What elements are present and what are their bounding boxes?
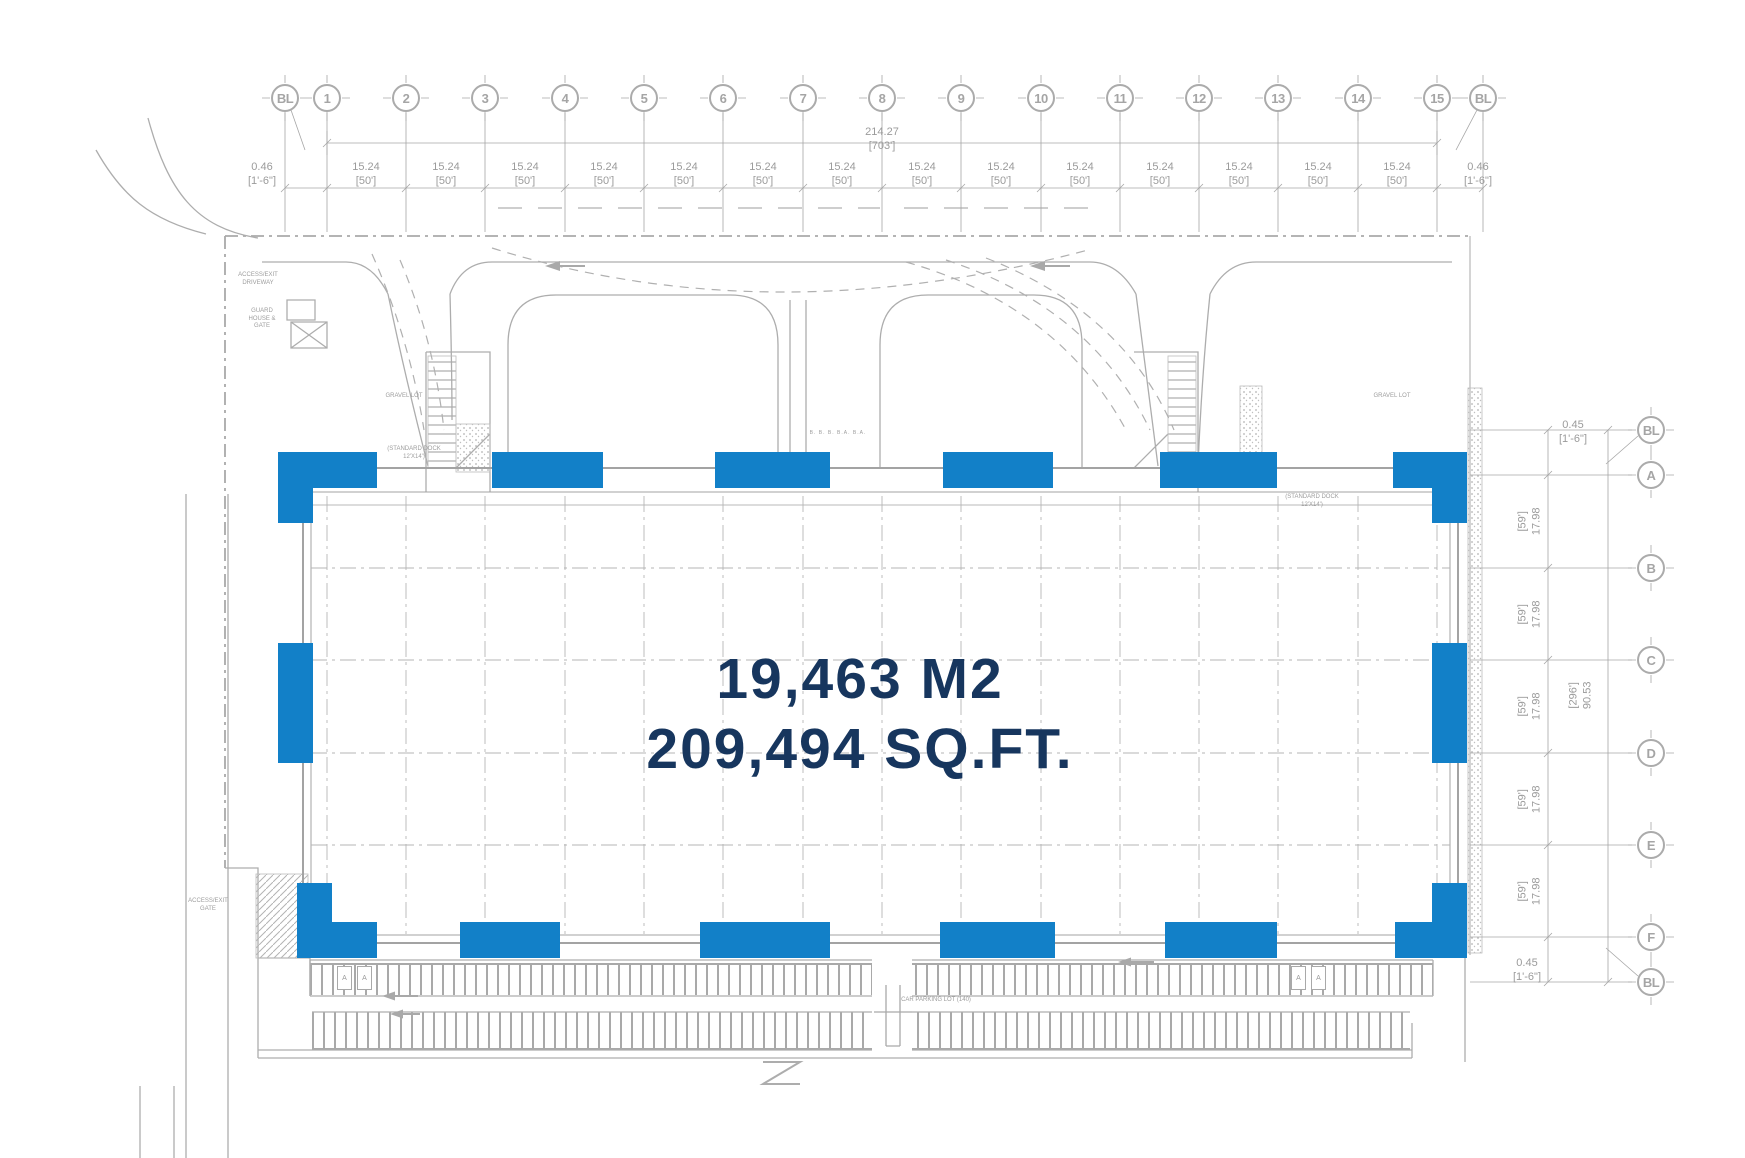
dimension-metric: 17.98	[1531, 693, 1543, 721]
dimension-imperial: [50']	[436, 175, 456, 187]
dimension-right: [59']17.98	[1516, 671, 1545, 741]
grid-bubble-top: 13	[1264, 84, 1292, 112]
grid-bubble-top: 9	[947, 84, 975, 112]
grid-bubble-top: 5	[630, 84, 658, 112]
dimension-overall-right: [296']90.53	[1567, 660, 1596, 730]
dock-door-letter: A	[362, 975, 367, 982]
dimension-top: 0.46[1'-6"]	[1443, 160, 1513, 189]
grid-bubble-top: 14	[1344, 84, 1372, 112]
dimension-metric: 17.98	[1531, 786, 1543, 814]
dimension-right: [59']17.98	[1516, 764, 1545, 834]
grid-bubble-label: 11	[1114, 91, 1127, 106]
grid-bubble-right: F	[1637, 923, 1665, 951]
grid-bubble-top: 4	[551, 84, 579, 112]
grid-bubble-label: 13	[1271, 91, 1284, 106]
center-ramp	[872, 956, 912, 1056]
dock-door-marker: A	[337, 966, 352, 990]
grid-bubble-right: C	[1637, 646, 1665, 674]
dimension-top: 15.24[50']	[887, 160, 957, 189]
grid-bubble-top: 12	[1185, 84, 1213, 112]
dimension-metric: 17.98	[1531, 878, 1543, 906]
dimension-top: 15.24[50']	[1204, 160, 1274, 189]
grid-bubble-label: B	[1647, 561, 1656, 576]
dock-door-marker: A	[357, 966, 372, 990]
grid-bubble-label: 14	[1351, 91, 1364, 106]
dimension-top: 15.24[50']	[807, 160, 877, 189]
grid-bubble-label: BL	[1643, 423, 1659, 438]
dimension-right: [59']17.98	[1516, 579, 1545, 649]
dimension-top: 15.24[50']	[649, 160, 719, 189]
dimension-top: 15.24[50']	[411, 160, 481, 189]
dimension-metric: 15.24	[828, 161, 856, 173]
dimension-imperial: [703']	[869, 140, 896, 152]
grid-bubble-label: A	[1647, 468, 1656, 483]
grid-bubble-label: 9	[958, 91, 965, 106]
dimension-metric: 15.24	[511, 161, 539, 173]
dimension-imperial: [50']	[1308, 175, 1328, 187]
grid-bubble-label: E	[1647, 838, 1655, 853]
grid-bubble-label: 3	[482, 91, 489, 106]
dimension-metric: 90.53	[1582, 682, 1594, 710]
micro-label-guard-house: GUARD HOUSE & GATE	[248, 308, 275, 331]
dimension-metric: 214.27	[865, 126, 899, 138]
grid-bubble-right: B	[1637, 554, 1665, 582]
dimension-metric: 15.24	[590, 161, 618, 173]
dimension-top: 15.24[50']	[331, 160, 401, 189]
dimension-imperial: [50']	[832, 175, 852, 187]
grid-bubble-label: C	[1647, 653, 1656, 668]
dimension-metric: 15.24	[749, 161, 777, 173]
dock-door-letter: A	[342, 975, 347, 982]
dimension-imperial: [1'-6"]	[1513, 971, 1541, 983]
dimension-metric: 15.24	[670, 161, 698, 173]
dimension-metric: 15.24	[987, 161, 1015, 173]
dimension-metric: 15.24	[1066, 161, 1094, 173]
dock-door-letter: A	[1316, 975, 1321, 982]
grid-bubble-label: 10	[1034, 91, 1047, 106]
dimension-metric: 0.45	[1516, 957, 1537, 969]
dimension-imperial: [1'-6"]	[1464, 175, 1492, 187]
dimension-top: 15.24[50']	[966, 160, 1036, 189]
grid-bubble-label: F	[1647, 930, 1654, 945]
grid-bubble-label: BL	[277, 91, 293, 106]
grid-bubble-label: BL	[1475, 91, 1491, 106]
micro-label-gravel-right: GRAVEL LOT	[1373, 393, 1410, 401]
dimension-imperial: [59']	[1517, 604, 1529, 624]
dimension-imperial: [59']	[1517, 789, 1529, 809]
grid-bubble-top: 8	[868, 84, 896, 112]
grid-bubble-right: A	[1637, 461, 1665, 489]
area-label-m2: 19,463 M2	[440, 646, 1280, 712]
dimension-metric: 15.24	[908, 161, 936, 173]
grid-bubble-top: 7	[789, 84, 817, 112]
dimension-imperial: [50']	[1387, 175, 1407, 187]
dimension-imperial: [50']	[515, 175, 535, 187]
dimension-overall-top: 214.27[703']	[842, 125, 922, 154]
grid-bubble-top: 1	[313, 84, 341, 112]
roads-and-yard	[96, 118, 1465, 1158]
dimension-top: 0.46[1'-6"]	[227, 160, 297, 189]
dimension-imperial: [296']	[1568, 682, 1580, 709]
dimension-metric: 15.24	[1383, 161, 1411, 173]
dimension-imperial: [59']	[1517, 881, 1529, 901]
dimension-right-top: 0.45[1'-6"]	[1538, 418, 1608, 447]
grid-bubble-label: 15	[1430, 91, 1443, 106]
dimension-top: 15.24[50']	[569, 160, 639, 189]
micro-label-door-tags: B. B. B. B.A. B.A.	[810, 430, 867, 436]
dimension-top: 15.24[50']	[490, 160, 560, 189]
grid-bubble-top: 15	[1423, 84, 1451, 112]
grid-bubble-label: 12	[1192, 91, 1205, 106]
dimension-metric: 0.46	[251, 161, 272, 173]
grid-bubble-label: 1	[324, 91, 331, 106]
dimension-top: 15.24[50']	[1362, 160, 1432, 189]
dimension-imperial: [59']	[1517, 696, 1529, 716]
dimension-top: 15.24[50']	[1045, 160, 1115, 189]
dimension-imperial: [50']	[1229, 175, 1249, 187]
dimension-metric: 15.24	[432, 161, 460, 173]
grid-bubble-label: 6	[720, 91, 727, 106]
grid-bubble-right: BL	[1637, 968, 1665, 996]
grid-bubble-top: 3	[471, 84, 499, 112]
dimension-metric: 17.98	[1531, 508, 1543, 536]
dimension-imperial: [50']	[1150, 175, 1170, 187]
micro-label-dock-right: (STANDARD DOCK 12'X14')	[1285, 494, 1339, 509]
dimension-imperial: [59']	[1517, 511, 1529, 531]
dimension-imperial: [50']	[912, 175, 932, 187]
grid-bubble-label: 7	[800, 91, 807, 106]
dimension-imperial: [50']	[753, 175, 773, 187]
dimension-metric: 17.98	[1531, 601, 1543, 629]
dimension-metric: 15.24	[1146, 161, 1174, 173]
grid-bubble-label: BL	[1643, 975, 1659, 990]
dimension-metric: 15.24	[1304, 161, 1332, 173]
grid-bubble-right: E	[1637, 831, 1665, 859]
grid-bubble-right: D	[1637, 739, 1665, 767]
grid-bubble-label: D	[1647, 746, 1656, 761]
dimension-top: 15.24[50']	[728, 160, 798, 189]
grid-bubble-top: 11	[1106, 84, 1134, 112]
dimension-imperial: [50']	[594, 175, 614, 187]
dimension-lines	[262, 75, 1674, 1005]
dimension-imperial: [50']	[356, 175, 376, 187]
micro-label-dock-left: (STANDARD DOCK 12'X14')	[387, 446, 441, 461]
dimension-imperial: [50']	[674, 175, 694, 187]
site-plan: BL 1 2 3 4 5 6 7 8 9 10 11 12 13 14 15 B…	[0, 0, 1745, 1158]
grid-bubble-label: 8	[879, 91, 886, 106]
grid-bubble-top: 10	[1027, 84, 1055, 112]
micro-label-gate: ACCESS/EXIT GATE	[188, 898, 228, 913]
grid-bubble-label: 4	[562, 91, 569, 106]
dimension-right: [59']17.98	[1516, 486, 1545, 556]
dimension-imperial: [1'-6"]	[248, 175, 276, 187]
traffic-arrow-icon	[382, 261, 1154, 1019]
dock-door-letter: A	[1296, 975, 1301, 982]
dimension-top: 15.24[50']	[1283, 160, 1353, 189]
micro-label-car-parking: CAR PARKING LOT (140)	[901, 997, 971, 1005]
dimension-metric: 0.46	[1467, 161, 1488, 173]
dimension-imperial: [50']	[1070, 175, 1090, 187]
grid-bubble-top: BL	[271, 84, 299, 112]
dock-door-marker: A	[1311, 966, 1326, 990]
grid-bubble-top: BL	[1469, 84, 1497, 112]
area-label-sqft: 209,494 SQ.FT.	[440, 716, 1280, 782]
grid-bubble-label: 2	[403, 91, 410, 106]
dimension-right-bottom: 0.45[1'-6"]	[1492, 956, 1562, 985]
dimension-metric: 15.24	[352, 161, 380, 173]
property-line	[225, 236, 1470, 955]
dimension-top: 15.24[50']	[1125, 160, 1195, 189]
micro-label-driveway: ACCESS/EXIT DRIVEWAY	[238, 272, 278, 287]
dimension-metric: 15.24	[1225, 161, 1253, 173]
micro-label-gravel-left: GRAVEL LOT	[385, 393, 422, 401]
grid-bubble-top: 2	[392, 84, 420, 112]
dimension-metric: 0.45	[1562, 419, 1583, 431]
dimension-imperial: [1'-6"]	[1559, 433, 1587, 445]
dimension-imperial: [50']	[991, 175, 1011, 187]
interior-gridlines	[311, 496, 1450, 934]
grid-bubble-right: BL	[1637, 416, 1665, 444]
dock-door-marker: A	[1291, 966, 1306, 990]
grid-bubble-label: 5	[641, 91, 648, 106]
dimension-right: [59']17.98	[1516, 856, 1545, 926]
grid-bubble-top: 6	[709, 84, 737, 112]
